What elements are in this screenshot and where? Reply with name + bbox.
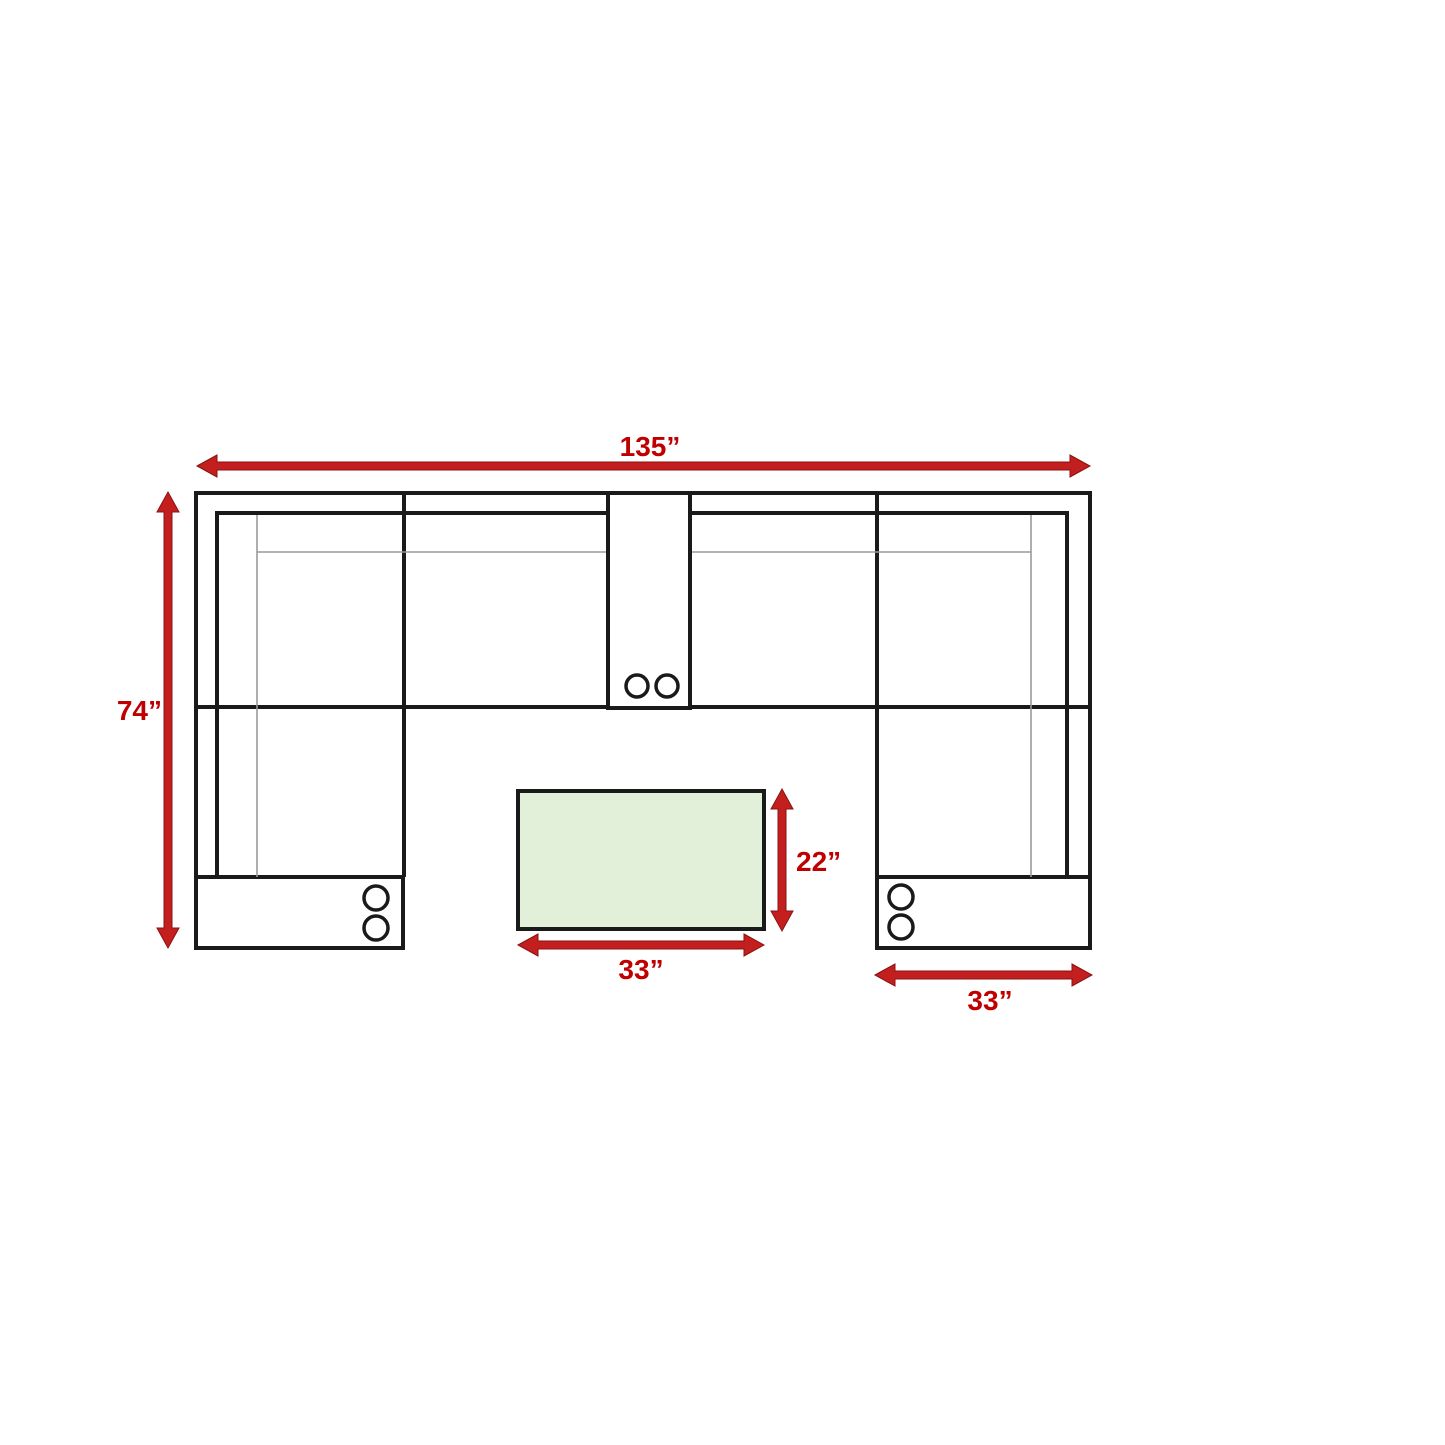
chaise-width-arrow (875, 964, 1092, 986)
left-armrest-cupholders (364, 886, 388, 940)
console-body (608, 493, 690, 708)
table-depth-arrow (771, 789, 793, 931)
overall-width-label: 135” (620, 431, 681, 462)
cupholder-icon (889, 885, 913, 909)
sectional-sofa-diagram: 135” 74” 22” 33” 33” (0, 0, 1445, 1445)
cupholder-icon (364, 916, 388, 940)
table-width-label: 33” (618, 954, 663, 985)
right-armrest-cupholders (889, 885, 913, 939)
coffee-table (518, 791, 764, 929)
cupholder-icon (889, 915, 913, 939)
cupholder-icon (364, 886, 388, 910)
chaise-width-label: 33” (967, 985, 1012, 1016)
overall-depth-label: 74” (117, 695, 162, 726)
cupholder-icon (656, 675, 678, 697)
floor-plan-canvas: 135” 74” 22” 33” 33” (0, 0, 1445, 1445)
cupholder-icon (626, 675, 648, 697)
center-console (608, 493, 690, 708)
table-width-arrow (518, 934, 764, 956)
table-depth-label: 22” (796, 846, 841, 877)
